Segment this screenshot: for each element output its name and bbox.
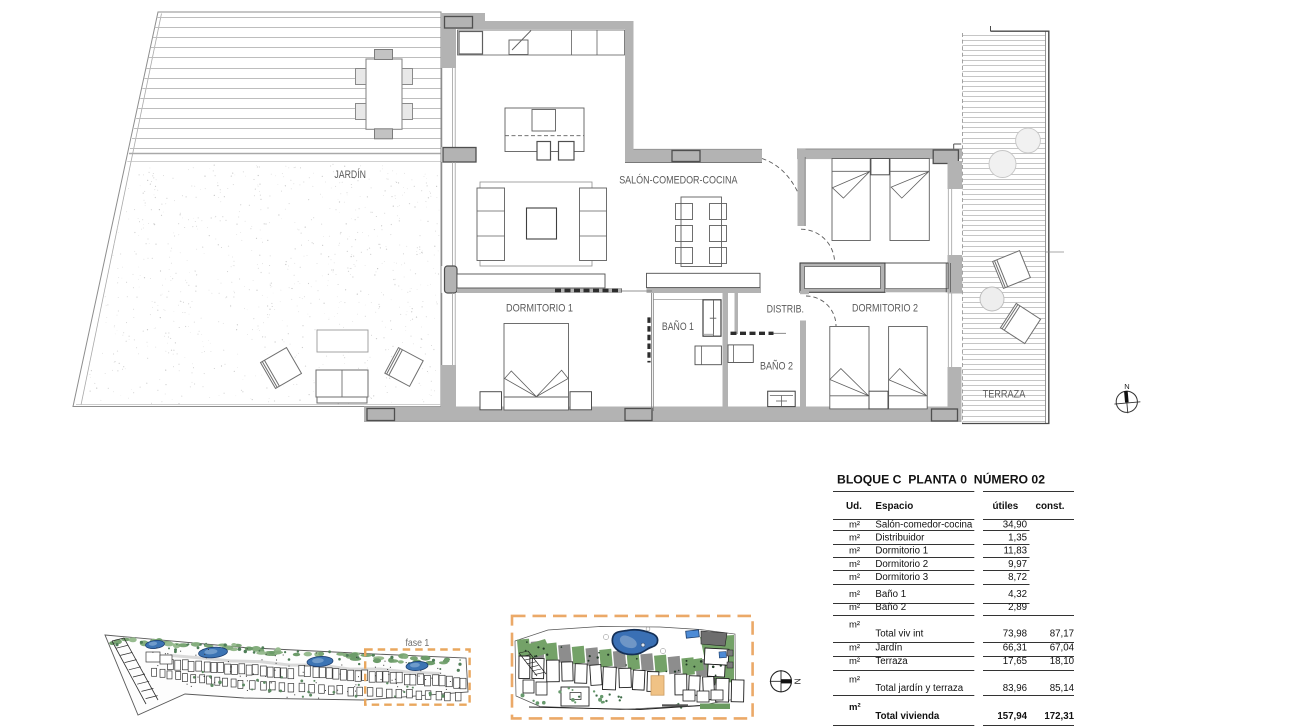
svg-text:JARDÍN: JARDÍN <box>334 168 366 181</box>
svg-text:83,96: 83,96 <box>1003 683 1027 694</box>
svg-text:Baño 1: Baño 1 <box>875 589 906 600</box>
svg-text:17,65: 17,65 <box>1003 656 1027 667</box>
svg-text:11,83: 11,83 <box>1003 546 1027 557</box>
svg-text:N: N <box>1124 382 1129 391</box>
svg-text:18,10: 18,10 <box>1050 656 1075 667</box>
svg-text:4,32: 4,32 <box>1008 589 1027 600</box>
svg-text:Salón-comedor-cocina: Salón-comedor-cocina <box>875 520 973 531</box>
svg-text:útiles: útiles <box>993 501 1019 512</box>
svg-text:1,35: 1,35 <box>1008 533 1027 544</box>
svg-text:8,72: 8,72 <box>1008 572 1027 583</box>
svg-text:TERRAZA: TERRAZA <box>983 389 1026 401</box>
svg-text:BAÑO 2: BAÑO 2 <box>760 359 793 372</box>
svg-text:66,31: 66,31 <box>1003 643 1027 654</box>
svg-text:m²: m² <box>849 656 860 667</box>
svg-text:SALÓN-COMEDOR-COCINA: SALÓN-COMEDOR-COCINA <box>619 173 738 186</box>
svg-text:Total vivienda: Total vivienda <box>875 711 939 722</box>
svg-text:157,94: 157,94 <box>997 711 1027 722</box>
svg-text:Ud.: Ud. <box>846 501 862 512</box>
svg-text:73,98: 73,98 <box>1003 628 1027 639</box>
svg-text:Dormitorio 1: Dormitorio 1 <box>875 546 928 557</box>
svg-text:9,97: 9,97 <box>1008 559 1027 570</box>
svg-text:DORMITORIO 1: DORMITORIO 1 <box>506 302 573 314</box>
svg-text:172,31: 172,31 <box>1044 711 1074 722</box>
svg-text:DISTRIB.: DISTRIB. <box>767 304 804 316</box>
svg-text:Espacio: Espacio <box>875 501 913 512</box>
svg-text:2,89: 2,89 <box>1008 602 1027 613</box>
svg-text:Jardín: Jardín <box>875 643 902 654</box>
svg-text:Total jardín y terraza: Total jardín y terraza <box>875 683 963 694</box>
svg-text:m²: m² <box>849 619 860 630</box>
svg-text:34,90: 34,90 <box>1003 520 1028 531</box>
svg-text:m²: m² <box>849 559 860 570</box>
svg-text:BAÑO 1: BAÑO 1 <box>662 320 694 333</box>
svg-text:m²: m² <box>849 643 860 654</box>
svg-text:m²: m² <box>849 546 860 557</box>
svg-text:Baño 2: Baño 2 <box>875 602 906 613</box>
svg-text:m²: m² <box>849 520 860 531</box>
svg-text:const.: const. <box>1035 501 1064 512</box>
svg-text:Dormitorio 2: Dormitorio 2 <box>875 559 928 570</box>
svg-text:N: N <box>792 678 802 684</box>
svg-text:Dormitorio 3: Dormitorio 3 <box>875 572 928 583</box>
svg-text:m²: m² <box>849 533 860 544</box>
svg-text:BLOQUE C PLANTA 0 NÚMERO 02: BLOQUE C PLANTA 0 NÚMERO 02 <box>837 471 1045 486</box>
svg-text:m²: m² <box>849 572 860 583</box>
svg-text:m²: m² <box>849 589 860 600</box>
svg-text:m²: m² <box>849 674 860 685</box>
svg-text:m²: m² <box>849 602 860 613</box>
svg-text:m²: m² <box>849 702 861 713</box>
svg-text:67,04: 67,04 <box>1050 643 1075 654</box>
svg-text:DORMITORIO 2: DORMITORIO 2 <box>852 302 918 314</box>
svg-text:87,17: 87,17 <box>1050 628 1074 639</box>
svg-text:fase 1: fase 1 <box>406 637 430 649</box>
svg-text:Terraza: Terraza <box>875 656 908 667</box>
svg-text:85,14: 85,14 <box>1050 683 1075 694</box>
svg-text:Total viv int: Total viv int <box>875 628 923 639</box>
svg-text:Distribuidor: Distribuidor <box>875 533 925 544</box>
